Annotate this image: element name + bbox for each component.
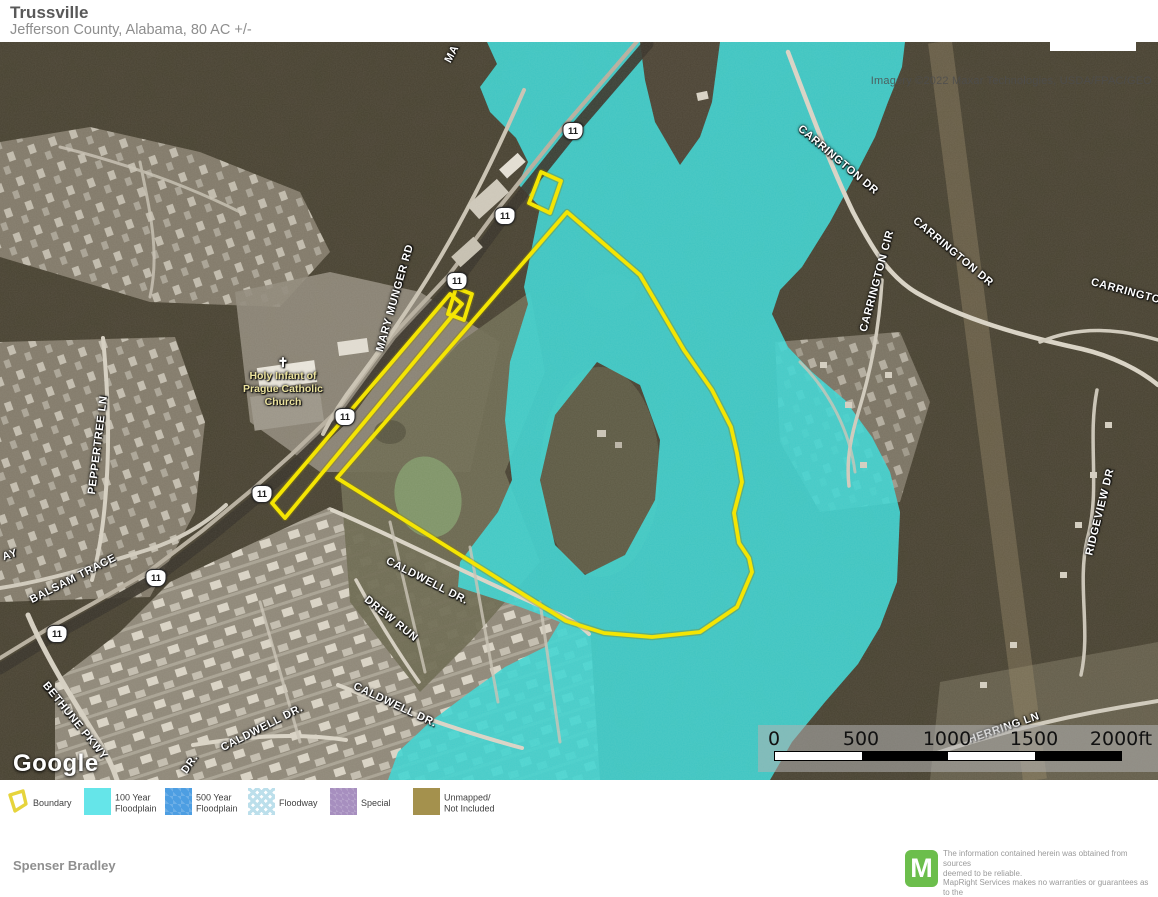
highway-shield-11: 11 [252,485,273,503]
imagery-attribution: Imagery ©2022 Maxar Technologies, USDA/F… [871,75,1152,87]
author-name: Spenser Bradley [13,858,116,873]
scale-bar: 0 500 1000 1500 2000ft [758,725,1158,772]
highway-shield-11: 11 [495,207,516,225]
boundary-icon [6,788,30,814]
texture-grain [0,42,1158,780]
legend-bar: Boundary 100 Year Floodplain 500 Year Fl… [0,780,1158,832]
highway-shield-11: 11 [447,272,468,290]
unmapped-swatch [413,788,440,815]
page-title: Trussville [10,3,88,23]
scale-tick: 2000ft [1090,728,1152,750]
page-subtitle: Jefferson County, Alabama, 80 AC +/- [10,22,252,38]
scale-tick: 1000 [923,728,971,750]
poi-church-label: ✝ Holy Infant of Prague Catholic Church [243,357,323,409]
special-swatch [330,788,357,815]
highway-shield-11: 11 [563,122,584,140]
500yr-swatch [165,788,192,815]
cross-icon: ✝ [243,357,323,369]
highway-shield-11: 11 [146,569,167,587]
scale-tick: 1500 [1010,728,1058,750]
scale-tick: 0 [768,728,780,750]
disclaimer-text: The information contained herein was obt… [943,849,1156,897]
floodway-swatch [248,788,275,815]
header: Trussville Jefferson County, Alabama, 80… [0,0,1158,42]
scale-bar-segments [774,751,1122,761]
highway-shield-11: 11 [335,408,356,426]
scale-tick: 500 [843,728,879,750]
100yr-swatch [84,788,111,815]
map-canvas [0,42,1158,780]
mapright-logo: M [905,850,938,887]
satellite-map[interactable]: MARY MUNGER RD CARRINGTON DR CARRINGTON … [0,42,1158,780]
map-control-fragment [1050,42,1136,51]
highway-shield-11: 11 [47,625,68,643]
footer: Spenser Bradley M The information contai… [0,832,1158,897]
google-logo[interactable]: Google [13,750,99,778]
map-report-page: Trussville Jefferson County, Alabama, 80… [0,0,1158,897]
